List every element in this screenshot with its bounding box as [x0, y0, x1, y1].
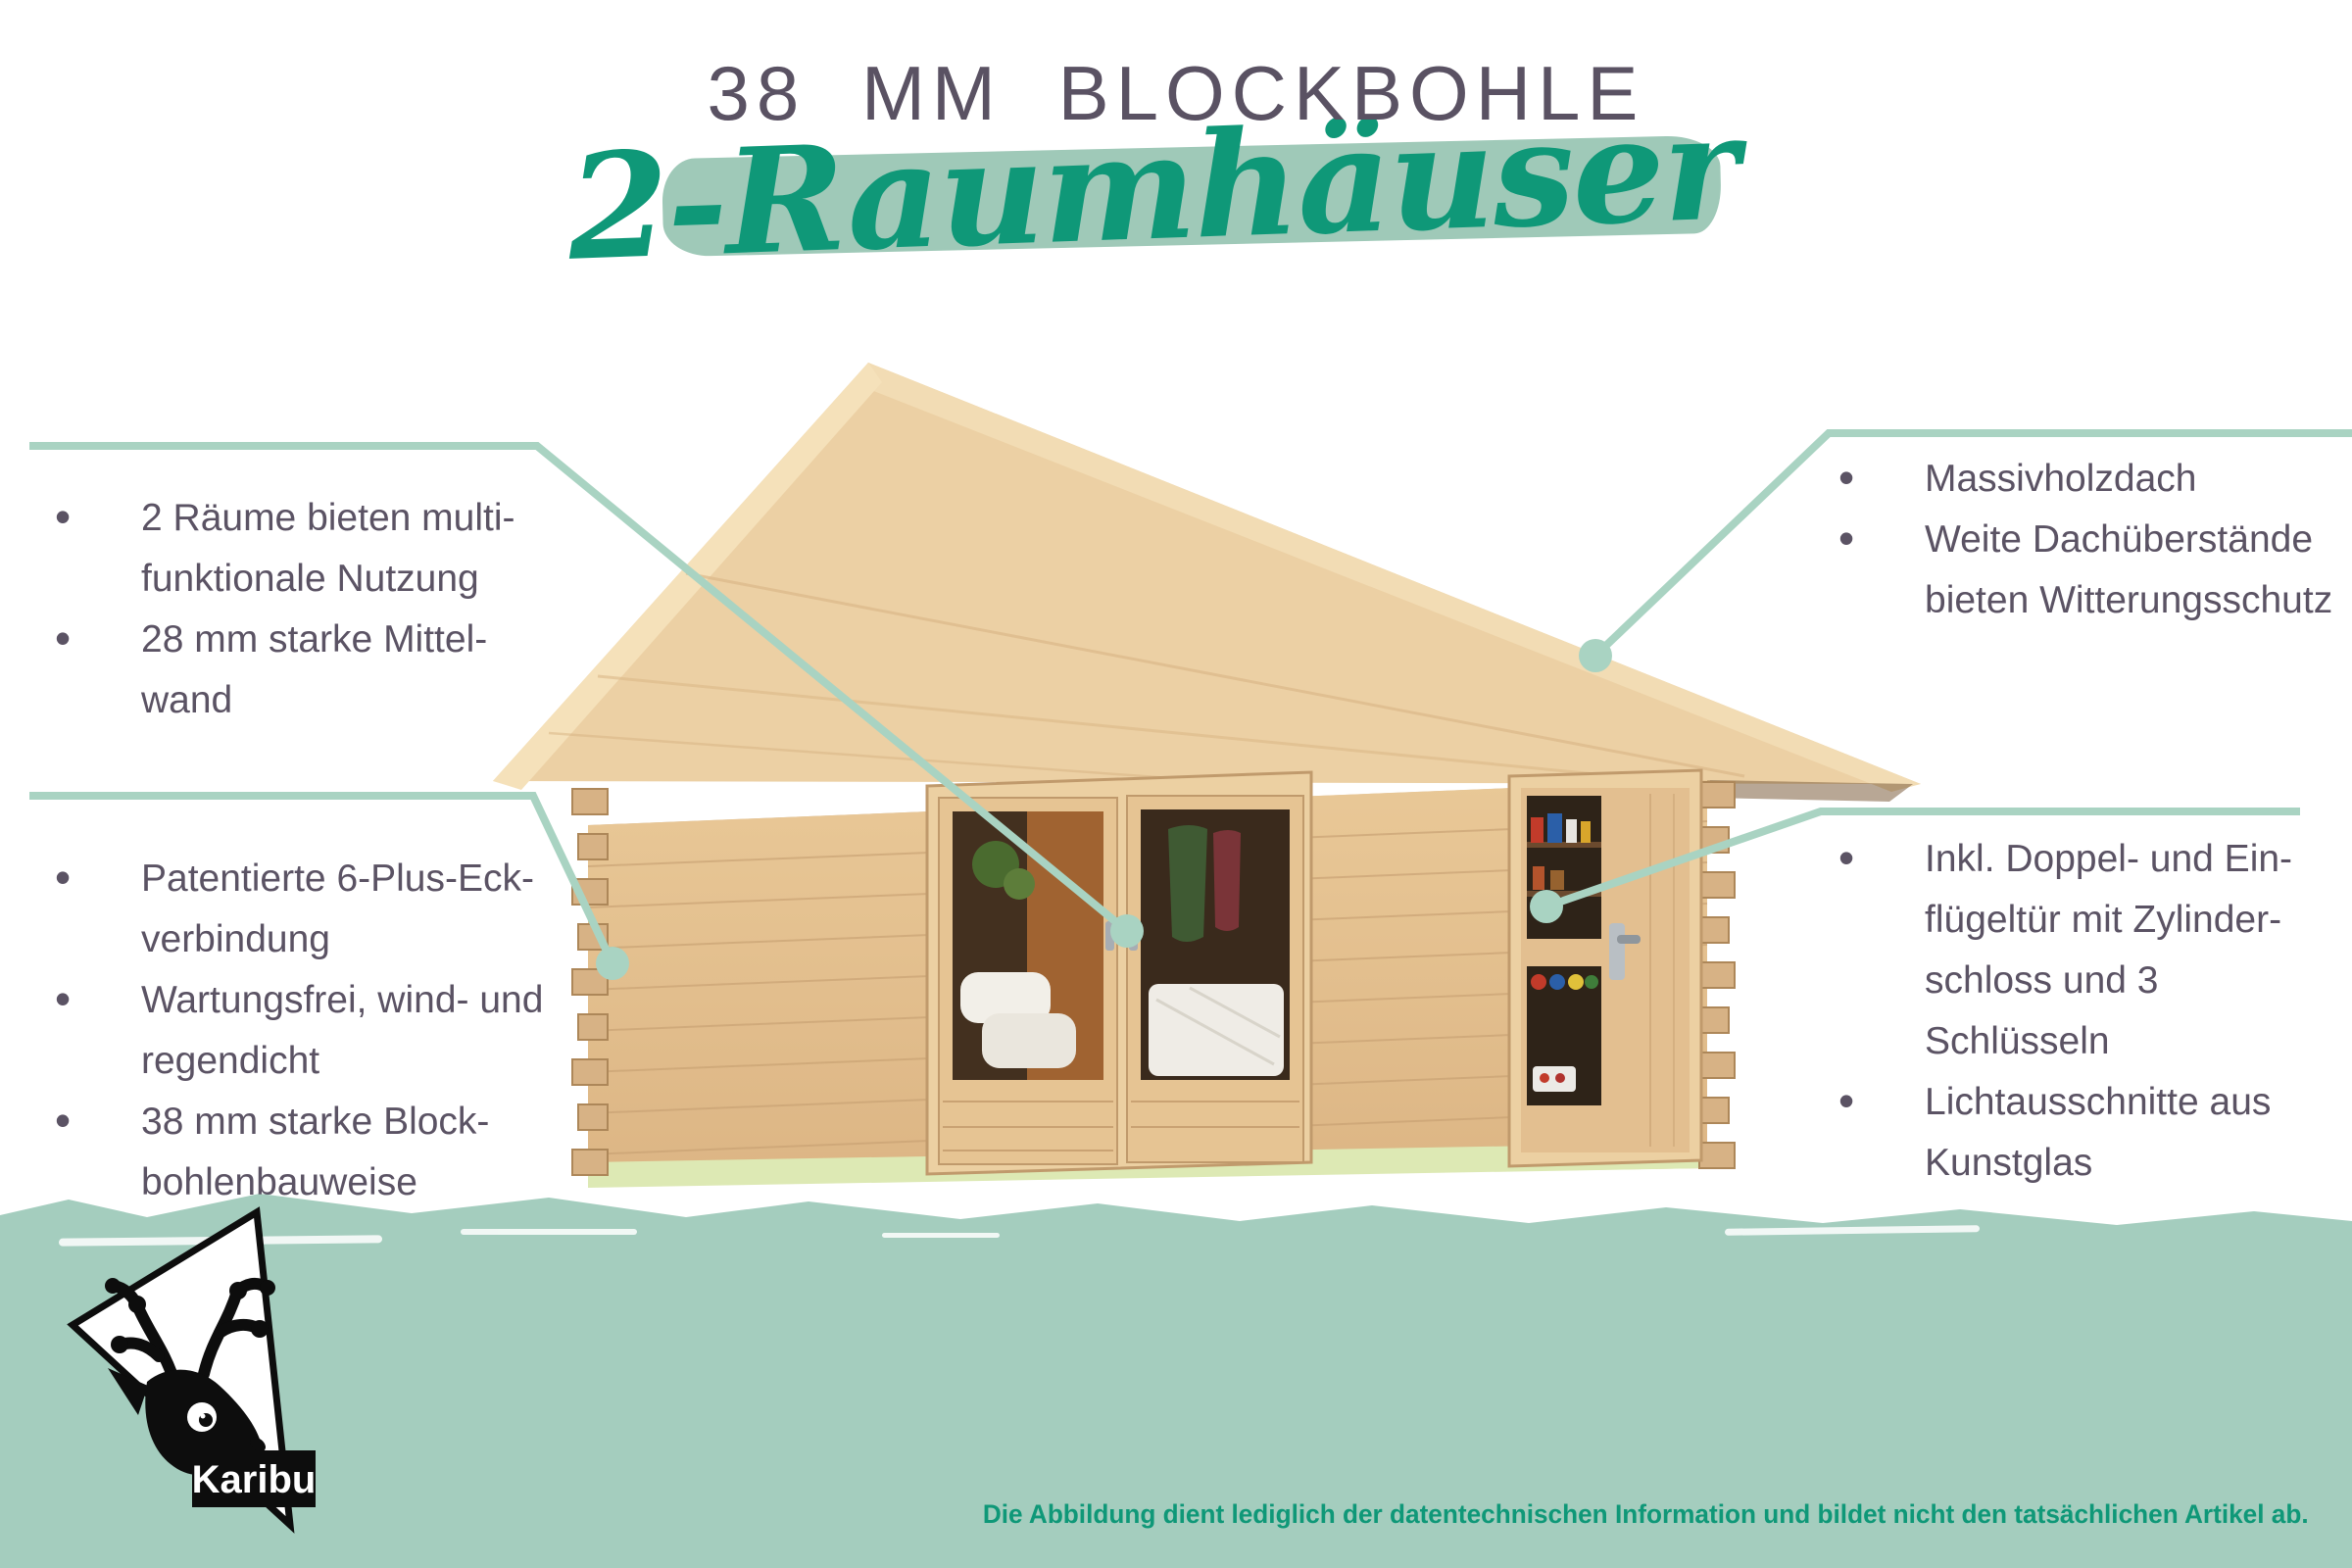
logo-brand-text: Karibu	[192, 1458, 317, 1501]
karibu-logo: Karibu	[0, 0, 2352, 1568]
